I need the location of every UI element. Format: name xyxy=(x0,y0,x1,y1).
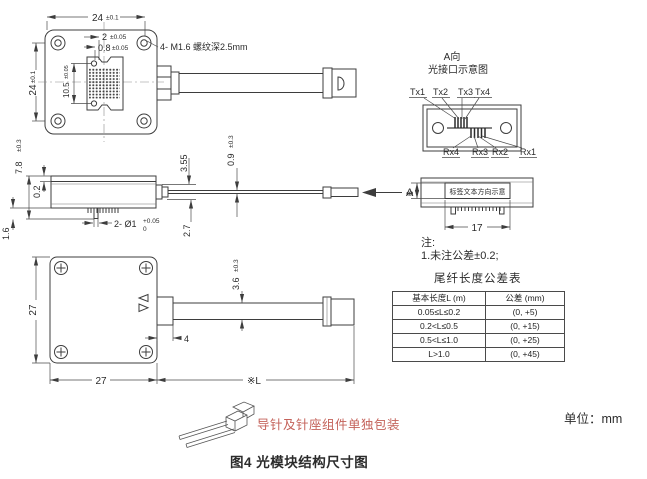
table-row: 0.5<L≤1.0 (0, +25) xyxy=(393,334,565,348)
drawing-linework: 24 ±0.1 24 ±0.1 2 ±0.05 0.8 ±0.05 xyxy=(0,0,647,479)
guide-hole-right xyxy=(501,123,512,134)
table-cell: (0, +25) xyxy=(486,334,565,348)
end-connector xyxy=(331,299,354,325)
tx-labels: Tx1 Tx2 Tx3 Tx4 xyxy=(409,87,492,119)
optical-port xyxy=(87,57,123,110)
dim-lid: 0.2 xyxy=(32,165,51,198)
dim-boot-heights: 3.55 2.7 xyxy=(162,154,196,237)
dim-fiber-value: 0.9 xyxy=(226,153,236,166)
rx4-label: Rx4 xyxy=(443,147,459,157)
table-cell: 0.05≤L≤0.2 xyxy=(393,306,486,320)
dim-fiber-tol: ±0.3 xyxy=(228,135,235,148)
dim-guide-pin-tol-lower: 0 xyxy=(143,226,147,233)
ferrule-collar xyxy=(323,187,331,198)
thread-note-text: 4- M1.6 螺纹深2.5mm xyxy=(160,41,248,52)
side-view: A 7.8 ±0.3 0.2 1.6 xyxy=(1,135,414,240)
dim-port-a-value: 2 xyxy=(102,32,107,42)
module-side-outline xyxy=(51,176,156,208)
table-cell: 0.5<L≤1.0 xyxy=(393,334,486,348)
dim-port-a-tol: ±0.05 xyxy=(110,34,127,41)
dim-total-height: 7.8 ±0.3 xyxy=(14,139,94,219)
module-bottom-outline xyxy=(50,257,157,363)
dim-fiber-dia: 0.9 ±0.3 xyxy=(226,135,237,217)
tolerance-table-title: 尾纤长度公差表 xyxy=(434,270,522,286)
tx3-label: Tx3 xyxy=(458,87,473,97)
cable-boot xyxy=(157,297,173,325)
dim-bottom-height-value: 27 xyxy=(28,304,39,316)
label-view-pins xyxy=(458,207,500,211)
pin-assembly-3d xyxy=(179,402,254,448)
table-cell: (0, +45) xyxy=(486,348,565,362)
dim-label-height-value: 6 xyxy=(405,191,415,196)
table-header-tolerance: 公差 (mm) xyxy=(486,292,565,306)
dim-guide-pin-dia: 2- Ø1 +0.05 0 xyxy=(82,218,160,233)
dim-bottom-height: 27 xyxy=(28,257,50,363)
table-cell: L>1.0 xyxy=(393,348,486,362)
rx2-label: Rx2 xyxy=(492,147,508,157)
notes-line-1: 1.未注公差±0.2; xyxy=(421,247,499,263)
dim-cable-tol: ±0.3 xyxy=(233,259,240,272)
interface-title-1: A向 xyxy=(444,50,461,63)
boot-step1 xyxy=(156,185,162,199)
ferrule-body xyxy=(331,188,358,197)
connector-collar xyxy=(323,68,332,98)
connector-keyway xyxy=(338,77,344,90)
dim-port-b-value: 0.8 xyxy=(98,43,111,53)
tx2-label: Tx2 xyxy=(433,87,448,97)
dim-left-height-value: 24 xyxy=(28,84,39,96)
triangle-mark-right xyxy=(139,304,148,312)
bottom-cable xyxy=(157,297,354,326)
top-cable xyxy=(157,66,356,100)
dim-boot-length: 4 xyxy=(145,325,189,344)
dim-boot-length-value: 4 xyxy=(184,334,189,344)
dim-top-width-tol: ±0.1 xyxy=(106,15,119,22)
table-row: 0.2<L≤0.5 (0, +15) xyxy=(393,320,565,334)
dim-left-height-tol: ±0.1 xyxy=(30,70,37,83)
dim-cable-value: 3.6 xyxy=(231,277,241,290)
packaging-note: 导针及针座组件单独包装 xyxy=(257,414,400,433)
dim-port-h-value: 10.5 xyxy=(62,82,71,98)
tx1-label: Tx1 xyxy=(410,87,425,97)
bottom-view: 4 3.6 ±0.3 27 ※L 27 xyxy=(28,257,354,387)
dim-total-height-tol: ±0.3 xyxy=(16,139,23,152)
label-text: 标签文本方向示意 xyxy=(450,187,506,196)
dim-top-width: 24 ±0.1 xyxy=(47,13,145,36)
dim-port-offsets: 2 ±0.05 0.8 ±0.05 xyxy=(84,32,129,60)
table-header-length: 基本长度L (m) xyxy=(393,292,486,306)
dim-pin-length-value: 1.6 xyxy=(1,227,11,240)
dim-pigtail-length-value: ※L xyxy=(247,376,261,387)
table-row: 0.05≤L≤0.2 (0, +5) xyxy=(393,306,565,320)
dim-bottom-width: 27 xyxy=(50,363,157,387)
technical-drawing-page: 24 ±0.1 24 ±0.1 2 ±0.05 0.8 ±0.05 xyxy=(0,0,647,479)
rx1-label: Rx1 xyxy=(520,147,536,157)
label-direction-view: 标签文本方向示意 6 17 xyxy=(405,178,533,234)
dim-label-width: 17 xyxy=(445,200,510,234)
dim-pin-length: 1.6 xyxy=(1,197,51,240)
dim-top-width-value: 24 xyxy=(92,13,104,24)
table-cell: 0.2<L≤0.5 xyxy=(393,320,486,334)
dim-guide-pin-value: 2- Ø1 xyxy=(114,219,137,229)
figure-caption: 图4 光模块结构尺寸图 xyxy=(230,451,368,471)
dim-guide-pin-tol-upper: +0.05 xyxy=(143,218,160,225)
triangle-mark-left xyxy=(139,295,148,302)
rx3-label: Rx3 xyxy=(472,147,488,157)
table-row: L>1.0 (0, +45) xyxy=(393,348,565,362)
pigtail-tolerance-table: 基本长度L (m) 公差 (mm) 0.05≤L≤0.2 (0, +5) 0.2… xyxy=(392,291,565,362)
bottom-screws xyxy=(55,262,153,359)
dim-port-b-tol: ±0.05 xyxy=(112,45,129,52)
dim-lid-value: 0.2 xyxy=(32,185,42,198)
dim-total-height-value: 7.8 xyxy=(14,161,24,174)
dim-ferrule-value: 2.7 xyxy=(182,224,192,237)
table-cell: (0, +5) xyxy=(486,306,565,320)
table-header-row: 基本长度L (m) 公差 (mm) xyxy=(393,292,565,306)
dim-boot-value: 3.55 xyxy=(179,154,189,172)
fiber-pin-grid xyxy=(89,69,120,99)
dim-port-h-tol: ±0.05 xyxy=(64,65,70,79)
pin-comb xyxy=(88,208,118,213)
dim-bottom-width-value: 27 xyxy=(95,376,107,387)
dim-cable-dia: 3.6 ±0.3 xyxy=(231,259,242,331)
optical-interface-view: A向 光接口示意图 Tx1 Tx2 Tx3 Tx4 xyxy=(409,50,537,158)
thread-note: 4- M1.6 螺纹深2.5mm xyxy=(147,41,248,52)
guide-hole-left xyxy=(433,123,444,134)
tx4-label: Tx4 xyxy=(475,87,490,97)
dim-label-width-value: 17 xyxy=(471,223,483,234)
interface-title-2: 光接口示意图 xyxy=(428,63,488,76)
top-view: 24 ±0.1 24 ±0.1 2 ±0.05 0.8 ±0.05 xyxy=(28,13,356,142)
boot-step2 xyxy=(162,187,168,197)
table-cell: (0, +15) xyxy=(486,320,565,334)
unit-label: 单位：mm xyxy=(564,408,622,427)
